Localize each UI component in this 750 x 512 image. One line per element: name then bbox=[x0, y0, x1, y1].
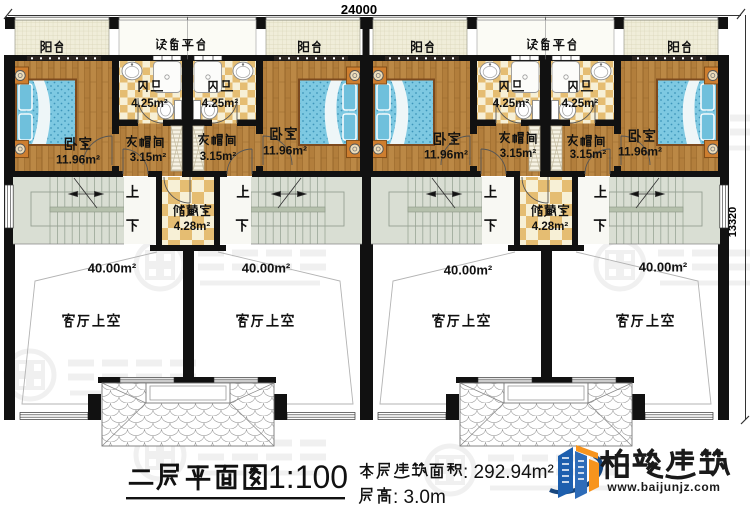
svg-text:11.96m²: 11.96m² bbox=[424, 148, 468, 162]
svg-text:4.25m²: 4.25m² bbox=[493, 98, 530, 110]
svg-text:40.00m²: 40.00m² bbox=[444, 263, 493, 278]
svg-text:4.28m²: 4.28m² bbox=[174, 221, 211, 233]
svg-text:40.00m²: 40.00m² bbox=[242, 261, 291, 276]
svg-text:: 3.0m: : 3.0m bbox=[393, 487, 446, 508]
svg-text:40.00m²: 40.00m² bbox=[639, 260, 688, 275]
svg-text:4.28m²: 4.28m² bbox=[532, 221, 569, 233]
svg-text:: 292.94m²: : 292.94m² bbox=[463, 462, 554, 483]
svg-text:11.96m²: 11.96m² bbox=[56, 153, 100, 167]
svg-text:3.15m²: 3.15m² bbox=[570, 149, 607, 161]
svg-text:3.15m²: 3.15m² bbox=[200, 151, 237, 163]
svg-text:24000: 24000 bbox=[341, 2, 377, 17]
svg-text:13320: 13320 bbox=[727, 207, 739, 238]
svg-text:40.00m²: 40.00m² bbox=[88, 261, 137, 276]
svg-text:1:100: 1:100 bbox=[268, 459, 348, 495]
svg-text:www.baijunjz.com: www.baijunjz.com bbox=[606, 480, 720, 494]
svg-text:4.25m²: 4.25m² bbox=[131, 98, 168, 110]
svg-text:11.96m²: 11.96m² bbox=[263, 144, 307, 158]
svg-text:3.15m²: 3.15m² bbox=[130, 152, 167, 164]
svg-text:11.96m²: 11.96m² bbox=[618, 145, 662, 159]
svg-text:4.25m²: 4.25m² bbox=[202, 98, 239, 110]
svg-text:4.25m²: 4.25m² bbox=[562, 98, 599, 110]
svg-text:3.15m²: 3.15m² bbox=[500, 148, 537, 160]
